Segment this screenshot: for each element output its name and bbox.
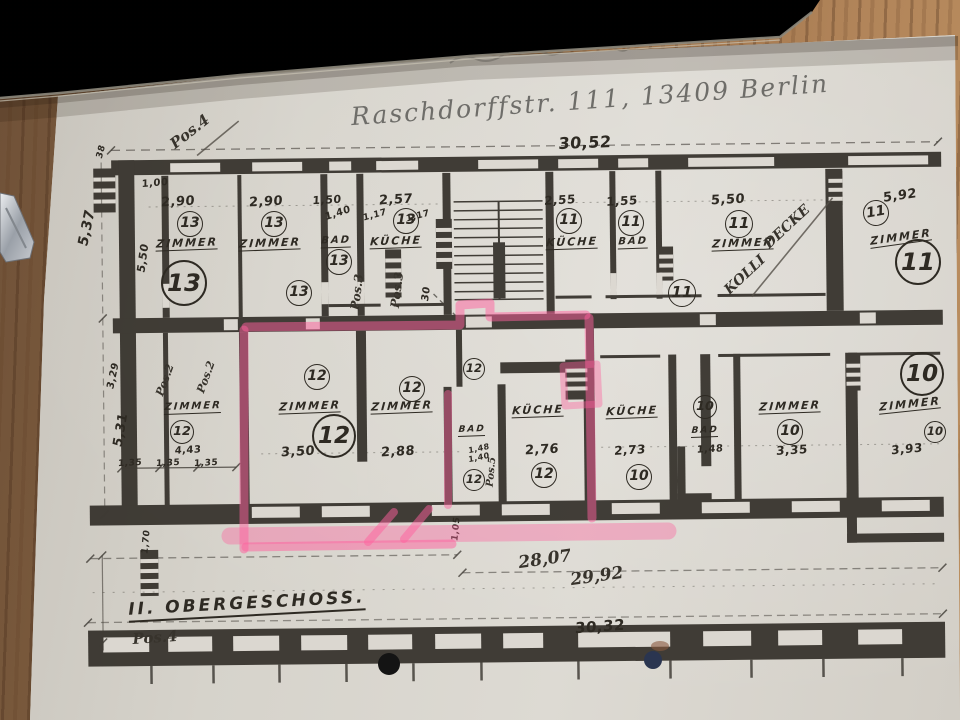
dim-135-b: 1,35 <box>156 459 181 469</box>
dim-117-a: 1,17 <box>363 208 388 223</box>
pos5-vert: Pos.5 <box>486 457 499 488</box>
room-zimmer-13b: ZIMMER <box>239 236 302 251</box>
dim-2992: 29,92 <box>569 565 624 589</box>
dim-350: 3,50 <box>281 445 316 460</box>
dim-135-a: 1,35 <box>118 459 143 469</box>
dim-total-top: 30,52 <box>558 134 612 152</box>
dim-140: 1,40 <box>324 205 351 223</box>
dim-592: 5,92 <box>883 187 917 205</box>
room-kueche-13: KÜCHE <box>370 235 423 250</box>
pos3-a: Pos.3 <box>349 273 365 310</box>
dim-170-vert: 1,70 <box>142 529 153 555</box>
apt13-circle-4: 13 <box>393 208 419 234</box>
dim-105-vert: 1,05 <box>452 516 463 542</box>
apt10-circle-4: 10 <box>924 421 946 443</box>
room-zimmer-12a: ZIMMER <box>164 401 222 415</box>
apt12-circle-6: 12 <box>531 462 557 488</box>
apt13-circle-big: 13 <box>161 260 207 306</box>
dim-2807: 28,07 <box>517 548 572 572</box>
dim-537: 5,37 <box>77 208 98 248</box>
dim-290-a: 2,90 <box>161 195 196 210</box>
room-bad-11: BAD <box>618 236 648 249</box>
room-zimmer-12c: ZIMMER <box>371 399 434 414</box>
apt12-circle-big: 12 <box>312 414 356 458</box>
apt11-circle-1: 11 <box>556 208 582 234</box>
room-zimmer-10b: ZIMMER <box>879 395 941 415</box>
dim-155: 1,55 <box>606 194 638 208</box>
pos3-b: Pos.3 <box>389 271 405 308</box>
street-address-handwriting: Raschdorffstr. 111, 13409 Berlin <box>350 71 830 129</box>
apt12-circle-4: 12 <box>463 358 485 380</box>
pos2-b: Pos.2 <box>195 360 217 395</box>
apt11-circle-4: 11 <box>668 279 696 307</box>
dim-550-left: 5,50 <box>136 242 151 274</box>
dim-30-vert: 30 <box>421 285 433 302</box>
room-bad-12: BAD <box>458 425 486 437</box>
pos2-a: Pos.2 <box>154 363 176 398</box>
apt12-circle-1: 12 <box>170 420 194 444</box>
apt12-circle-2: 12 <box>304 364 330 390</box>
dim-550: 5,50 <box>711 193 746 208</box>
photo-scene: Raschdorffstr. 111, 13409 Berlin II. OBE… <box>0 0 960 720</box>
apt12-circle-5: 12 <box>463 469 485 491</box>
dim-276: 2,76 <box>525 443 560 458</box>
pos4-top: Pos.4 <box>168 112 213 152</box>
dim-288: 2,88 <box>381 445 416 460</box>
dim-100: 1,00 <box>142 178 169 190</box>
apt10-circle-big: 10 <box>900 352 944 396</box>
pos4-bottom: Pos.4 <box>132 629 178 647</box>
room-zimmer-12b: ZIMMER <box>279 399 342 414</box>
apt13-circle-1: 13 <box>177 211 203 237</box>
room-bad-10: BAD <box>691 426 719 438</box>
dim-335: 3,35 <box>776 443 808 457</box>
apt11-circle-big: 11 <box>895 239 941 285</box>
dim-443: 4,43 <box>174 445 201 456</box>
apt10-circle-1: 10 <box>626 464 652 490</box>
dim-273: 2,73 <box>614 443 646 457</box>
apt11-circle-2: 11 <box>618 210 644 236</box>
dim-150: 1,50 <box>312 194 342 207</box>
apt13-circle-2: 13 <box>261 211 287 237</box>
room-zimmer-10a: ZIMMER <box>759 399 822 414</box>
apt11-circle-3: 11 <box>725 210 753 238</box>
room-kueche-11: KÜCHE <box>546 236 599 251</box>
dim-135-c: 1,35 <box>194 459 219 469</box>
dim-257: 2,57 <box>379 193 414 208</box>
note-kolli: KOLLI <box>722 253 768 297</box>
room-kueche-10: KÜCHE <box>606 405 659 420</box>
dim-38: 38 <box>96 144 108 160</box>
floor-title: II. OBERGESCHOSS. <box>128 589 366 622</box>
plan-labels: Raschdorffstr. 111, 13409 Berlin II. OBE… <box>0 0 960 720</box>
room-zimmer-13a: ZIMMER <box>156 236 219 251</box>
room-kueche-12: KÜCHE <box>512 404 565 419</box>
dim-393: 3,93 <box>891 442 923 457</box>
apt10-circle-2: 10 <box>693 395 717 419</box>
apt13-circle-5: 13 <box>286 280 312 306</box>
apt13-circle-3: 13 <box>326 249 352 275</box>
dim-531: 5,31 <box>112 411 130 448</box>
dim-3032: 30,32 <box>575 618 625 637</box>
dim-290-b: 2,90 <box>249 195 284 210</box>
dim-255: 2,55 <box>544 193 576 207</box>
note-decke: DECKE <box>761 203 812 252</box>
dim-329: 3,29 <box>106 361 121 390</box>
room-bad-13: BAD <box>321 235 351 248</box>
apt10-circle-3: 10 <box>777 419 803 445</box>
dim-148-b: 1,48 <box>696 444 723 455</box>
